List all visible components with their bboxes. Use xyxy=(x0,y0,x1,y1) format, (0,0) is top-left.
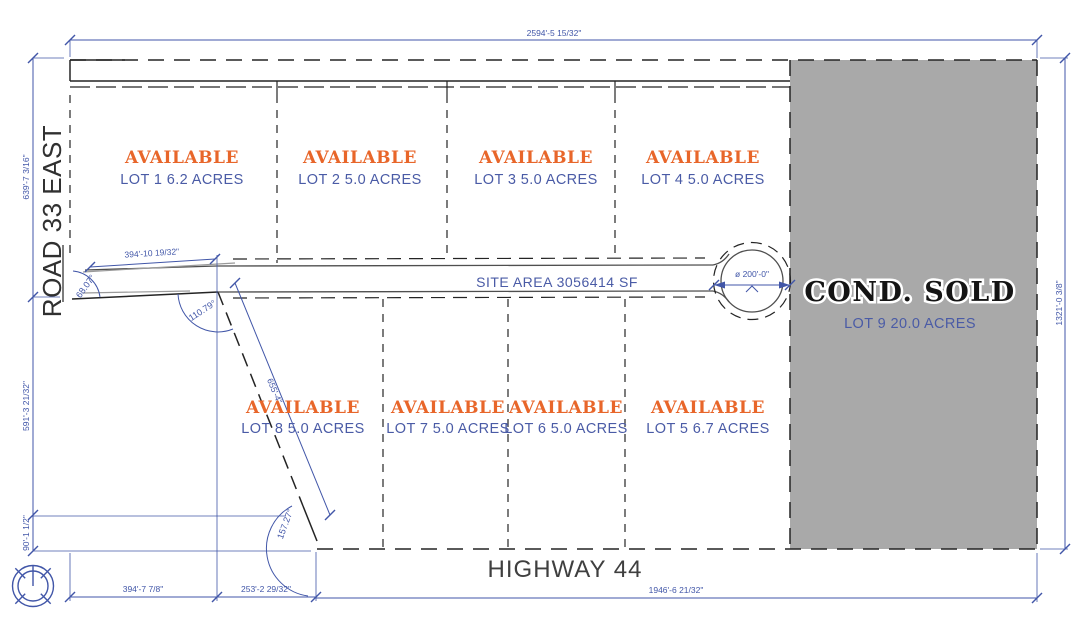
lot-8-label: LOT 8 5.0 ACRES xyxy=(241,421,364,437)
dim-culdesac-label: ø 200'-0" xyxy=(735,269,769,279)
lot-5: AVAILABLE LOT 5 6.7 ACRES xyxy=(646,398,769,437)
dim-right-label: 1321'-0 3/8" xyxy=(1054,280,1064,325)
lot-3: AVAILABLE LOT 3 5.0 ACRES xyxy=(474,148,597,188)
angle-road-junction-label: 110.79° xyxy=(187,298,218,323)
dim-bottom-east-label: 1946'-6 21/32" xyxy=(649,585,704,595)
dim-road-entry-label: 394'-10 19/32" xyxy=(124,246,179,259)
lot-4: AVAILABLE LOT 4 5.0 ACRES xyxy=(641,148,764,188)
lot-6-label: LOT 6 5.0 ACRES xyxy=(504,421,627,437)
road-north-edge xyxy=(217,265,713,266)
highway-44-label: HIGHWAY 44 xyxy=(488,556,643,583)
lot-1-status: AVAILABLE xyxy=(124,148,239,168)
dim-left-upper-label: 639'-7 3/16" xyxy=(21,154,31,199)
lot-8-status: AVAILABLE xyxy=(245,398,360,418)
lot-3-status: AVAILABLE xyxy=(478,148,593,168)
lot-1-label: LOT 1 6.2 ACRES xyxy=(120,172,243,188)
angle-southwest-label: 157.27° xyxy=(275,507,295,540)
site-plan-page: 2594'-5 15/32" 639'-7 3/16" 591'-3 21/32… xyxy=(0,0,1082,635)
southwest-diagonal-end xyxy=(303,506,317,541)
road-south-row-line xyxy=(233,297,705,298)
road-south-edge xyxy=(218,291,713,292)
lot-5-label: LOT 5 6.7 ACRES xyxy=(646,421,769,437)
lot-6: AVAILABLE LOT 6 5.0 ACRES xyxy=(504,398,627,437)
dim-top-label: 2594'-5 15/32" xyxy=(527,28,582,38)
dim-left-lower-label: 90'-1 1/2" xyxy=(21,515,31,551)
road-33-east-label: ROAD 33 EAST xyxy=(37,125,67,317)
lot-2: AVAILABLE LOT 2 5.0 ACRES xyxy=(298,148,421,188)
lot-2-label: LOT 2 5.0 ACRES xyxy=(298,172,421,188)
lot-9-status: COND. SOLD xyxy=(804,277,1015,308)
road-north-row-line xyxy=(233,258,705,259)
lot-4-label: LOT 4 5.0 ACRES xyxy=(641,172,764,188)
north-arrow-icon xyxy=(13,566,54,607)
angle-northwest-label: 68.07° xyxy=(74,272,98,299)
lot-1: AVAILABLE LOT 1 6.2 ACRES xyxy=(120,148,243,188)
dim-left-middle-label: 591'-3 21/32" xyxy=(21,381,31,431)
lot-5-status: AVAILABLE xyxy=(650,398,765,418)
lot-2-status: AVAILABLE xyxy=(302,148,417,168)
lot-3-label: LOT 3 5.0 ACRES xyxy=(474,172,597,188)
culdesac-center-mark xyxy=(746,286,758,292)
internal-road xyxy=(83,243,791,320)
lot-9-label: LOT 9 20.0 ACRES xyxy=(844,316,976,332)
lot-7-status: AVAILABLE xyxy=(390,398,505,418)
lot-8: AVAILABLE LOT 8 5.0 ACRES xyxy=(241,398,364,437)
culdesac-curb-circle xyxy=(721,250,783,312)
lot-6-status: AVAILABLE xyxy=(508,398,623,418)
dim-bottom-center-label: 253'-2 29/32" xyxy=(241,584,291,594)
site-area-label: SITE AREA 3056414 SF xyxy=(476,274,638,290)
site-plan-canvas: 2594'-5 15/32" 639'-7 3/16" 591'-3 21/32… xyxy=(0,0,1082,635)
lot-4-status: AVAILABLE xyxy=(645,148,760,168)
lot-7-label: LOT 7 5.0 ACRES xyxy=(386,421,509,437)
lot-7: AVAILABLE LOT 7 5.0 ACRES xyxy=(386,398,509,437)
culdesac-row-circle xyxy=(714,243,791,320)
dim-bottom-west-label: 394'-7 7/8" xyxy=(123,584,164,594)
road-edge-overlay-1 xyxy=(83,263,235,272)
